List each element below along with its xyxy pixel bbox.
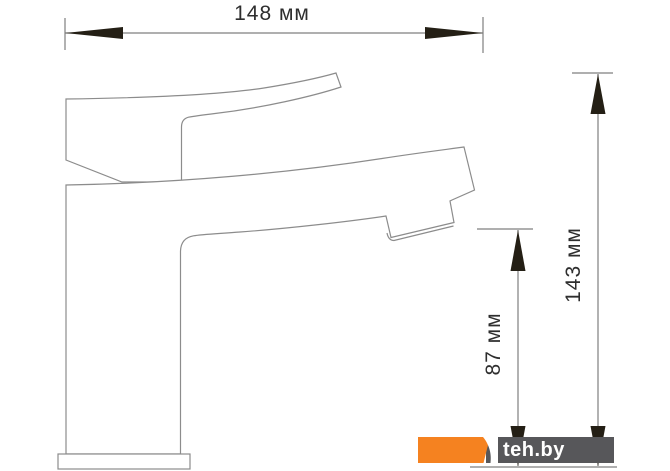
faucet-dimension-diagram: 148 мм 143 мм 87 мм teh.by [0, 0, 670, 471]
width-dimension-label: 148 мм [234, 2, 310, 26]
total-height-dimension-label: 143 мм [562, 227, 586, 303]
watermark-logo-icon [481, 437, 499, 463]
watermark-banner: teh.by [418, 437, 614, 463]
total-height-arrowhead-top-icon [591, 74, 606, 114]
faucet-body [66, 147, 475, 454]
faucet-base-plate [58, 454, 190, 469]
spout-height-arrowhead-top-icon [511, 230, 526, 271]
faucet-handle [66, 73, 341, 182]
faucet-outline [58, 73, 475, 469]
width-arrowhead-left-icon [65, 27, 123, 39]
watermark-orange-block [418, 437, 490, 463]
width-arrowhead-right-icon [425, 27, 483, 39]
watermark-gray-block: teh.by [486, 437, 614, 463]
spout-height-dimension-label: 87 мм [482, 312, 506, 375]
watermark-text: teh.by [503, 437, 565, 463]
